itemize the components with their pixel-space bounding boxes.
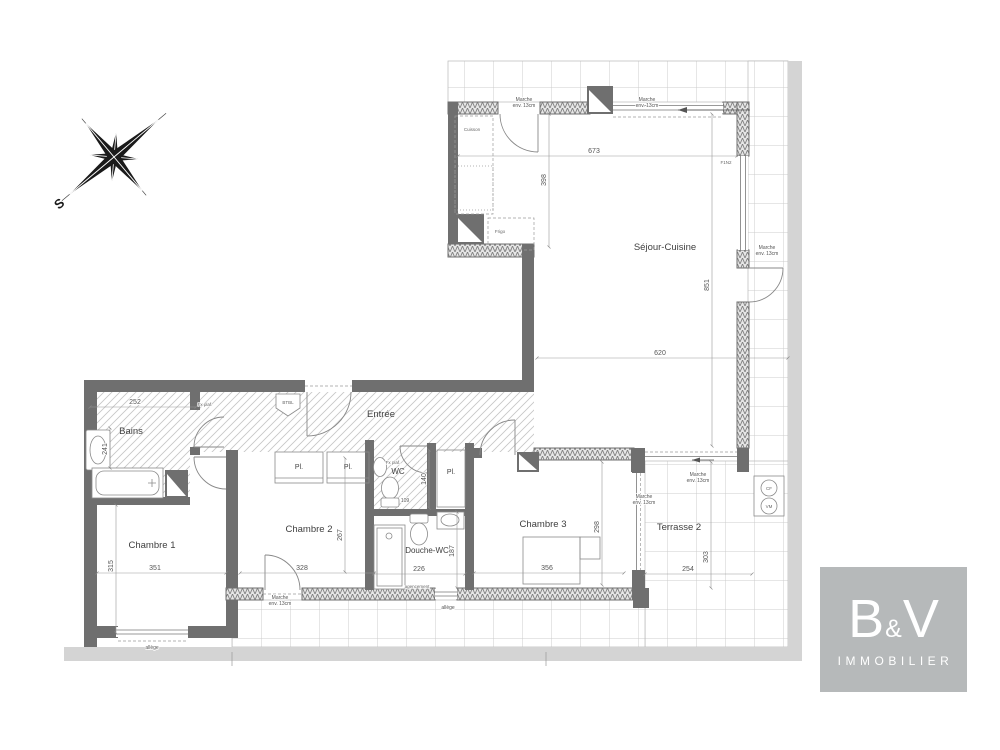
dim-value: 620 bbox=[654, 350, 666, 357]
window-right bbox=[738, 156, 748, 250]
wall bbox=[84, 626, 118, 638]
room-label-douche: Douche-WC bbox=[405, 546, 449, 555]
ceiling-note: Fx plaf. bbox=[198, 402, 213, 407]
dim-value: 315 bbox=[108, 560, 115, 572]
room-label-chambre3: Chambre 3 bbox=[520, 519, 567, 530]
bed bbox=[523, 537, 580, 584]
step-note: env. 13cm bbox=[269, 601, 292, 607]
dim-value: 109 bbox=[401, 498, 410, 504]
agencement-note: agencement bbox=[405, 584, 431, 589]
dim-value: 252 bbox=[129, 399, 141, 406]
fridge-note: Frigo bbox=[495, 229, 506, 234]
wall-pier bbox=[632, 455, 645, 473]
cf-label: CF bbox=[766, 486, 772, 491]
dim-value: 187 bbox=[449, 545, 456, 557]
compass-split bbox=[86, 123, 143, 190]
window-terrasse2 bbox=[645, 449, 737, 459]
dim-value: 267 bbox=[337, 529, 344, 541]
closet-label: Pl. bbox=[295, 464, 303, 471]
dim-value: 226 bbox=[413, 566, 425, 573]
wall bbox=[522, 244, 534, 392]
wall bbox=[365, 440, 374, 590]
btbl-label: BTBL bbox=[282, 400, 294, 405]
dim-value: 398 bbox=[541, 174, 548, 186]
dim-value: 328 bbox=[296, 565, 308, 572]
wall bbox=[226, 588, 263, 600]
nightstand bbox=[580, 537, 600, 559]
wall bbox=[226, 450, 238, 600]
window-top bbox=[613, 103, 723, 113]
douche-toilet bbox=[411, 523, 428, 545]
dim-value: 673 bbox=[588, 148, 600, 155]
compass-rose: S bbox=[23, 75, 198, 244]
window-ref: F1N2 bbox=[720, 160, 732, 165]
wall bbox=[737, 250, 749, 268]
wall-pier bbox=[737, 448, 749, 472]
wall bbox=[448, 244, 534, 257]
dim-value: 851 bbox=[704, 279, 711, 291]
step-note: env. 13cm bbox=[633, 500, 656, 506]
wall bbox=[465, 443, 474, 590]
floorplan-page: 673 398 620 851 252 241 351 315 328 267 … bbox=[0, 0, 1000, 750]
room-label-wc: WC bbox=[391, 467, 405, 476]
step-note: env. 13cm bbox=[636, 103, 659, 109]
room-label-chambre2: Chambre 2 bbox=[286, 524, 333, 535]
wall bbox=[352, 380, 534, 392]
kitchen-appliance bbox=[455, 166, 493, 210]
right-edge-band bbox=[788, 61, 802, 647]
room-label-sejour: Séjour-Cuisine bbox=[634, 242, 696, 253]
shower-tray bbox=[374, 525, 405, 589]
wall bbox=[427, 443, 436, 509]
step-note: env. 13cm bbox=[687, 478, 710, 484]
door-arc-chambre2 bbox=[265, 555, 300, 590]
douche-toilet-tank bbox=[410, 514, 428, 523]
step-note: env. 13cm bbox=[756, 251, 779, 257]
window-chambre3 bbox=[634, 473, 644, 570]
wc-toilet-tank bbox=[381, 498, 399, 507]
closet-label: Pl. bbox=[344, 464, 352, 471]
wall bbox=[540, 102, 590, 114]
room-label-terrasse2: Terrasse 2 bbox=[657, 522, 701, 533]
terraces bbox=[64, 61, 802, 666]
window-douche bbox=[435, 589, 457, 599]
dim-value: 303 bbox=[703, 551, 710, 563]
wall bbox=[534, 448, 634, 460]
logo-letter-b: B bbox=[848, 592, 884, 646]
step-note: env. 13cm bbox=[513, 103, 536, 109]
wall bbox=[188, 626, 238, 638]
bottom-edge-band bbox=[64, 647, 802, 661]
dim-value: 241 bbox=[102, 443, 109, 455]
sill-note: allège bbox=[145, 645, 159, 651]
door-arc-kitchen bbox=[500, 114, 538, 152]
wall bbox=[737, 302, 749, 448]
wall-pier bbox=[632, 570, 645, 600]
window-chambre1 bbox=[116, 627, 188, 637]
ceiling-note: Fx plaf. bbox=[386, 460, 401, 465]
room-label-chambre1: Chambre 1 bbox=[129, 540, 176, 551]
dim-value: 140 bbox=[421, 473, 428, 485]
room-label-entree: Entrée bbox=[367, 409, 395, 420]
agency-logo-subtitle: IMMOBILIER bbox=[838, 654, 954, 668]
closet-3 bbox=[437, 450, 465, 507]
logo-letter-v: V bbox=[903, 592, 939, 646]
agency-logo: B & V IMMOBILIER bbox=[820, 567, 967, 692]
compass-south-label: S bbox=[51, 195, 68, 212]
wall bbox=[457, 588, 633, 600]
wc-toilet bbox=[382, 477, 399, 499]
sill-note: allège bbox=[441, 605, 455, 611]
wall bbox=[84, 380, 305, 392]
logo-ampersand: & bbox=[885, 617, 902, 642]
dim-value: 351 bbox=[149, 565, 161, 572]
terrace-bottom-tiles bbox=[232, 600, 645, 647]
closet-label: Pl. bbox=[447, 469, 455, 476]
wc-sink bbox=[374, 458, 387, 477]
wall bbox=[190, 447, 200, 455]
terrace-top-tiles bbox=[448, 61, 788, 102]
dim-value: 298 bbox=[594, 521, 601, 533]
vm-label: VM bbox=[766, 504, 773, 509]
kitchen-note: Cuisson bbox=[464, 127, 481, 132]
room-label-bains: Bains bbox=[119, 426, 143, 437]
dim-value: 356 bbox=[541, 565, 553, 572]
dim-value: 254 bbox=[682, 566, 694, 573]
agency-logo-brand: B & V bbox=[848, 592, 939, 646]
door-arc-chambre1 bbox=[194, 457, 226, 489]
